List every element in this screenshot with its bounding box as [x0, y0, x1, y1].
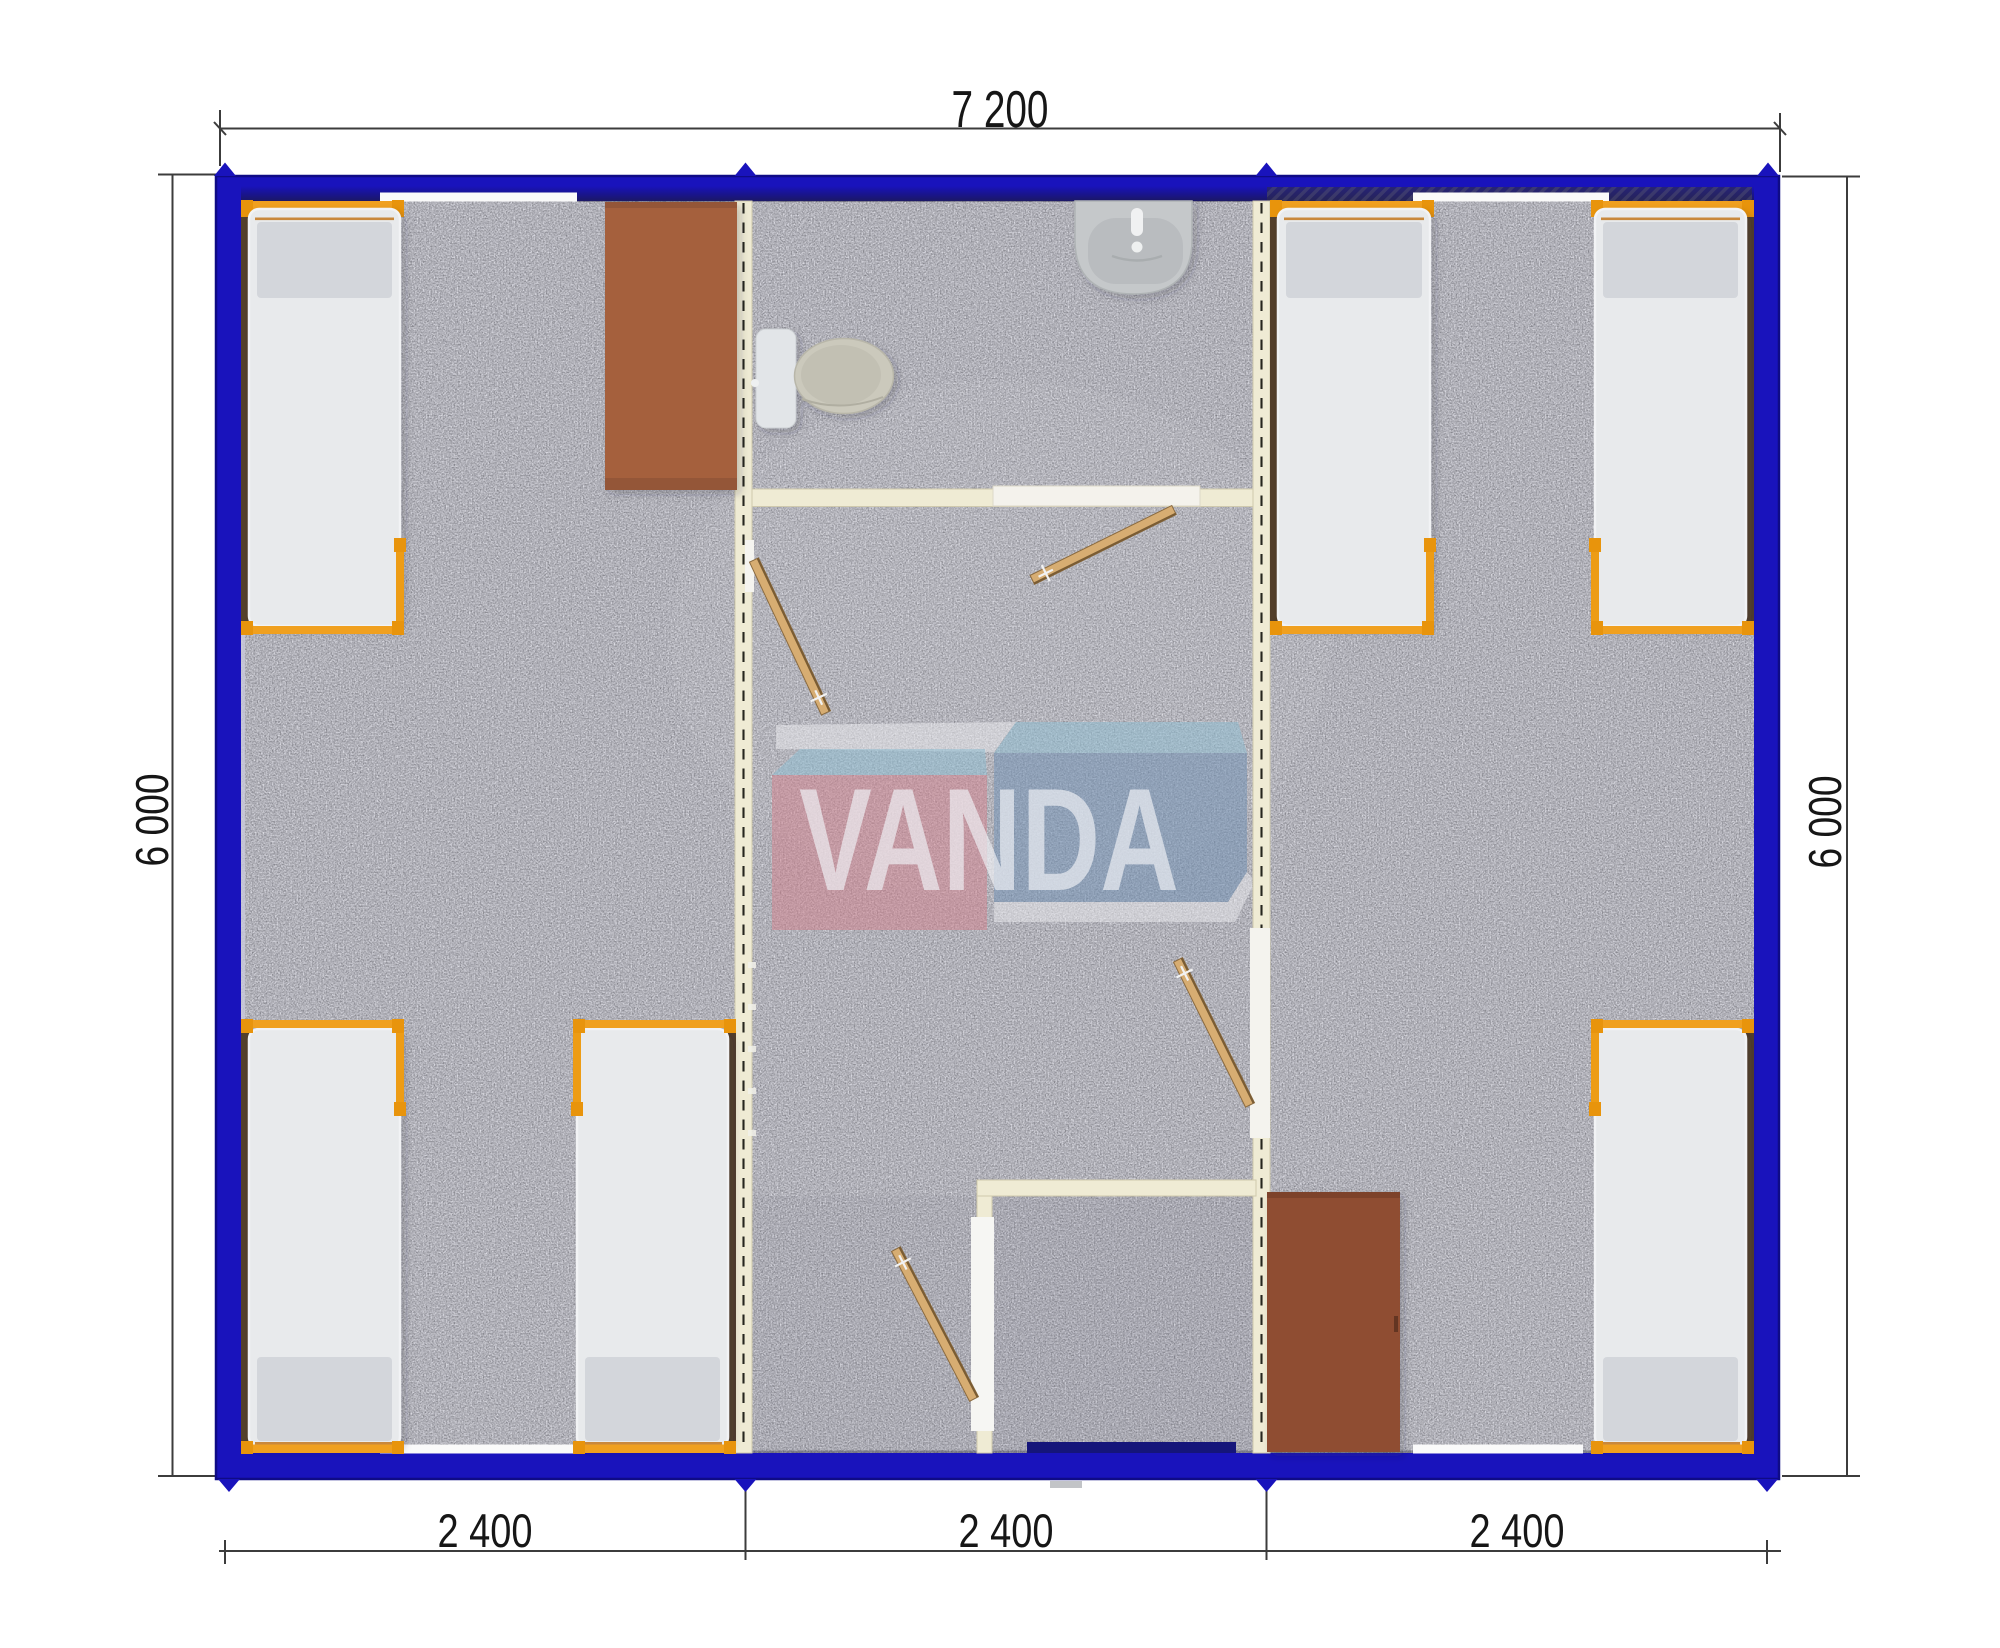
svg-text:2 400: 2 400 [959, 1504, 1054, 1557]
svg-text:2 400: 2 400 [1470, 1504, 1565, 1557]
svg-text:6 000: 6 000 [1799, 776, 1851, 869]
svg-text:VANDA: VANDA [799, 758, 1179, 921]
svg-text:2 400: 2 400 [438, 1504, 533, 1557]
svg-text:7 200: 7 200 [952, 81, 1049, 139]
svg-text:6 000: 6 000 [126, 774, 178, 867]
